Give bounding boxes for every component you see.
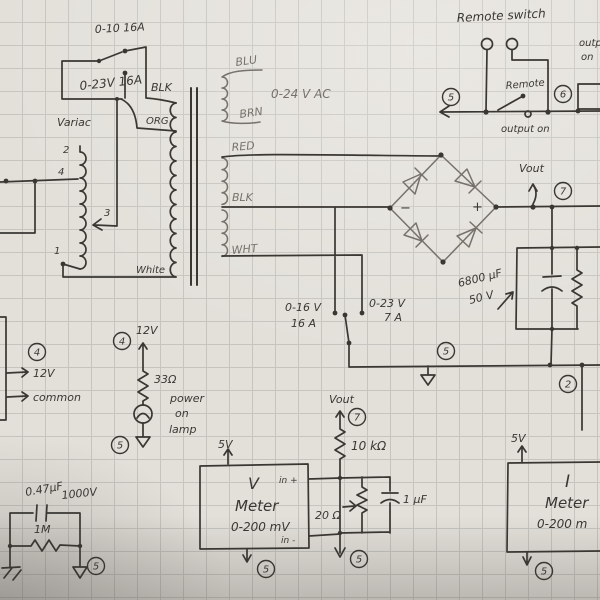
svg-text:4: 4: [34, 348, 40, 359]
variac-coil: [80, 146, 86, 269]
primary-blk-label: BLK: [151, 81, 173, 94]
primary-white-label: White: [136, 265, 165, 276]
sec-blu-label: BLU: [235, 53, 258, 69]
transformer-core: [191, 88, 197, 285]
filter-block-wiring: [498, 247, 600, 365]
breaker-mid-label: 0-23V 16A: [79, 73, 143, 93]
graph-paper-schematic: 0-10 16A 0-23V 16A BLK ORG Variac 2 4 3 …: [0, 0, 600, 600]
node-4-aux: 4: [29, 344, 46, 361]
primary-org-label: ORG: [146, 116, 169, 127]
corner-output-label: output: [579, 38, 600, 49]
aux-module-wiring: [0, 317, 28, 420]
imeter-wiring: [518, 446, 531, 565]
node-5-divider: 5: [351, 551, 368, 568]
variac-label: Variac: [57, 116, 91, 129]
tap-selector-lever: [345, 315, 349, 343]
imeter-name-1: I: [565, 472, 570, 492]
snubber-cap-label: 0.47µF: [24, 479, 64, 498]
aux-12v-label: 12V: [33, 367, 56, 380]
svg-text:7: 7: [354, 413, 361, 424]
snubber-voltage-label: 1000V: [61, 485, 99, 502]
node-6: 6: [555, 86, 572, 103]
vmeter-in-pos-label: in +: [279, 476, 298, 486]
sec-red-label: RED: [231, 139, 255, 154]
divider-pot-label: 20 Ω: [315, 509, 341, 522]
selector-right-volts: 0-23 V: [369, 297, 406, 310]
selector-right-amps: 7 A: [384, 311, 402, 324]
svg-text:2: 2: [565, 380, 571, 391]
divider-resistor-label: 10 kΩ: [351, 439, 387, 453]
node-5-lamp: 5: [112, 437, 129, 454]
svg-text:7: 7: [560, 187, 567, 198]
svg-text:5: 5: [541, 567, 547, 578]
schematic-drawing: 0-10 16A 0-23V 16A BLK ORG Variac 2 4 3 …: [0, 0, 600, 600]
bridge-diodes: [403, 168, 482, 247]
svg-text:5: 5: [117, 441, 123, 452]
node-5-vmeter: 5: [258, 561, 275, 578]
vmeter-range-label: 0-200 mV: [231, 520, 290, 534]
aux-winding-label: 0-24 V AC: [271, 87, 331, 101]
imeter-range-label: 0-200 m: [537, 517, 587, 531]
divider-vout-label: Vout: [329, 393, 355, 406]
lamp-caption-2: on: [175, 407, 189, 420]
divider-wiring: [335, 411, 399, 557]
breaker-top-label: 0-10 16A: [94, 20, 145, 36]
svg-text:5: 5: [448, 93, 454, 104]
aux-common-label: common: [33, 391, 81, 404]
filter-cap-voltage: 50 V: [468, 288, 497, 307]
remote-switch-title: Remote switch: [456, 6, 546, 25]
lamp-caption-1: power: [169, 392, 205, 405]
svg-text:6: 6: [560, 90, 566, 101]
dc-plus-rail: [496, 184, 600, 248]
lamp-caption-3: lamp: [169, 423, 197, 436]
imeter-name-2: Meter: [545, 494, 589, 512]
selector-left-volts: 0-16 V: [285, 301, 322, 314]
bridge-minus-label: −: [400, 201, 411, 216]
sec-wht-label: WHT: [231, 242, 259, 257]
variac-tap2-label: 2: [63, 145, 69, 156]
node-5-ground-rail: 5: [438, 343, 455, 360]
filter-cap-label: 6800 µF: [457, 266, 504, 290]
node-7-divider: 7: [349, 409, 366, 426]
sec-blk-label: BLK: [232, 191, 254, 204]
lamp-chain-wiring: [136, 343, 150, 447]
ground-rail: [349, 343, 600, 430]
vmeter-in-neg-label: in -: [281, 536, 295, 546]
variac-tap1-label: 1: [54, 246, 60, 257]
node-5-snubber: 5: [88, 558, 105, 575]
divider-cap-label: 1 µF: [403, 493, 427, 506]
vmeter-name-1: V: [248, 474, 260, 493]
svg-text:5: 5: [93, 562, 99, 573]
node-2: 2: [560, 376, 577, 393]
variac-taps-wiring: [0, 179, 176, 277]
remote-label: Remote: [505, 78, 545, 92]
variac-tap3-label: 3: [104, 208, 110, 219]
bridge-plus-label: +: [472, 200, 483, 215]
svg-text:4: 4: [119, 337, 125, 348]
imeter-supply-label: 5V: [511, 432, 527, 445]
snubber-wiring: [2, 505, 87, 580]
variac-tap4-label: 4: [58, 167, 64, 178]
secondary-leads-wiring: [222, 155, 440, 313]
sec-brn-label: BRN: [239, 105, 264, 121]
node-5-imeter: 5: [536, 563, 553, 580]
remote-jack-right: [507, 39, 518, 50]
vmeter-supply-label: 5V: [218, 438, 234, 451]
snubber-resistor-label: 1M: [34, 523, 51, 536]
vout-label: Vout: [519, 162, 545, 175]
lamp-filament: [137, 414, 149, 419]
vmeter-name-2: Meter: [235, 497, 279, 515]
selector-left-amps: 16 A: [291, 317, 316, 330]
lamp-resistor-label: 33Ω: [154, 373, 177, 386]
lamp-12v-label: 12V: [136, 324, 159, 337]
svg-text:5: 5: [356, 555, 362, 566]
node-7-vout: 7: [555, 183, 572, 200]
remote-jack-left: [482, 39, 493, 50]
output-on-label: output on: [501, 124, 550, 135]
transformer-primary-coil: [170, 103, 176, 277]
svg-text:5: 5: [263, 565, 269, 576]
node-4-lamp: 4: [114, 333, 131, 350]
svg-text:5: 5: [443, 347, 449, 358]
corner-on-label: on: [581, 52, 593, 63]
node-5-remote: 5: [443, 89, 460, 106]
